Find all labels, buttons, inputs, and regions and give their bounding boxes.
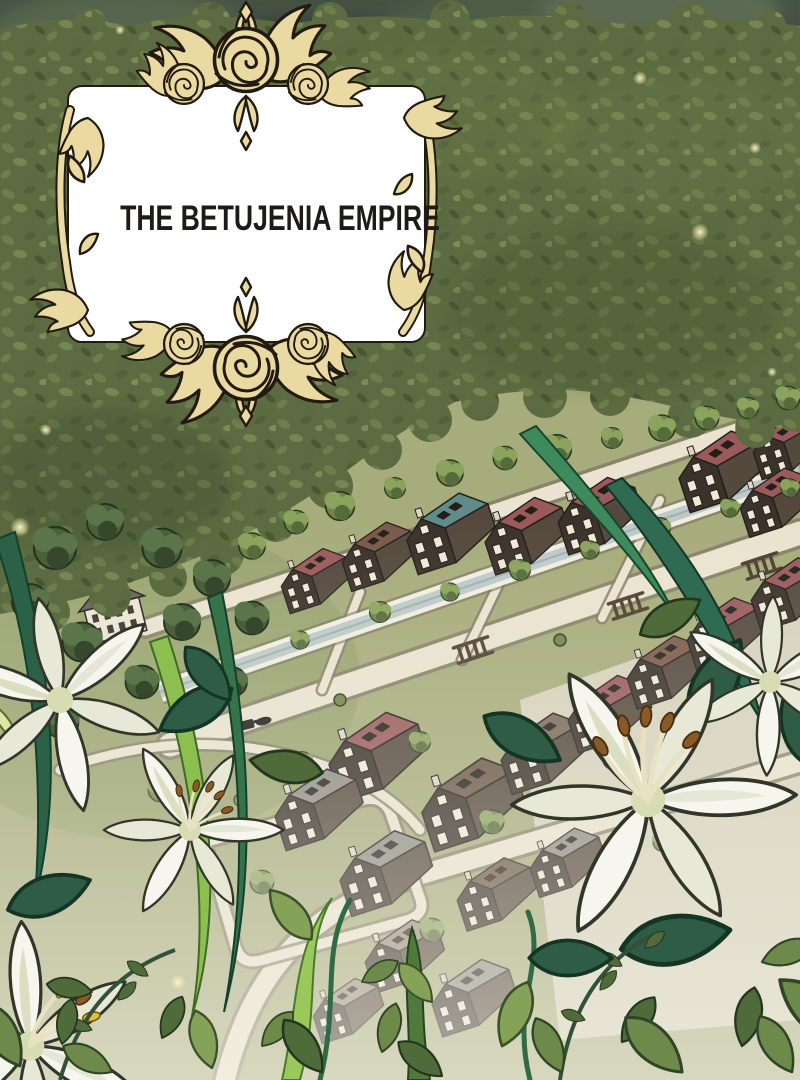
webtoon-panel: THE BETUJENIA EMPIRE bbox=[0, 0, 800, 1080]
scene-illustration bbox=[0, 0, 800, 1080]
title-card-title: THE BETUJENIA EMPIRE bbox=[120, 201, 374, 237]
